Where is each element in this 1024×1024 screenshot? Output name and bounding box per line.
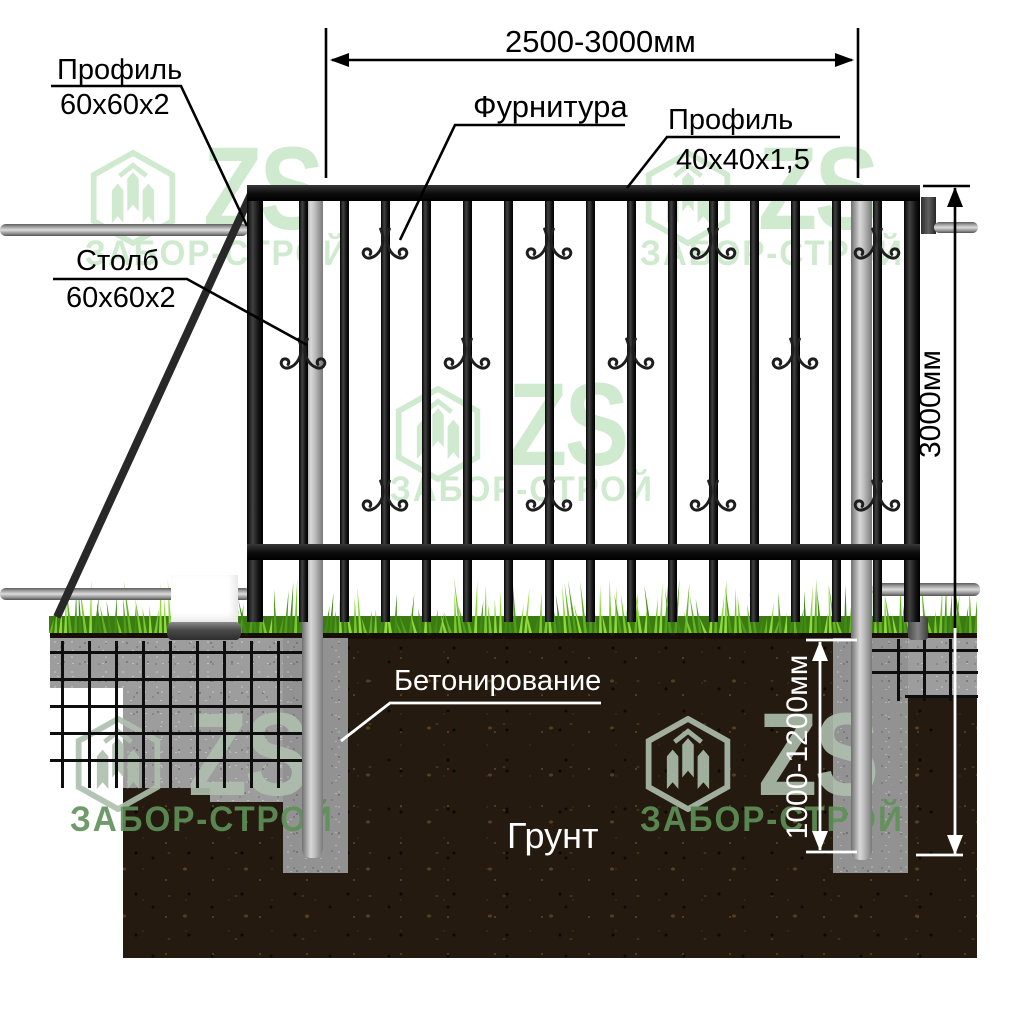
label-profile-picket-size: 40х40х1,5	[676, 145, 810, 175]
brand-hexagon-icon	[390, 386, 486, 482]
concrete-strip-left	[50, 638, 308, 688]
fence-construction-diagram: ZS ЗАБОР-СТРОЙ ZS ЗАБОР-СТРОЙ ZS ЗАБОР-С…	[0, 0, 1024, 1024]
fence-post-left	[302, 196, 323, 858]
label-profile-frame-size: 60х60х2	[60, 90, 170, 120]
fence-rail-bottom	[247, 544, 920, 560]
watermark-logo: ZS ЗАБОР-СТРОЙ	[70, 716, 340, 836]
fence-post-right	[851, 196, 872, 860]
ornament-curl-icon	[767, 337, 823, 383]
brand-hexagon-icon	[640, 716, 736, 812]
brand-initials: ZS	[188, 696, 307, 814]
label-post-size: 60х60х2	[66, 283, 176, 313]
dimension-section-width: 2500-3000мм	[505, 24, 696, 60]
label-concreting: Бетонирование	[394, 666, 601, 696]
label-ground: Грунт	[507, 817, 598, 855]
adjacent-rail-top-left	[0, 224, 248, 236]
ornament-curl-icon	[357, 227, 413, 273]
brand-initials: ZS	[508, 366, 627, 484]
watermark-logo: ZS ЗАБОР-СТРОЙ	[390, 386, 660, 506]
label-profile-picket-title: Профиль	[668, 105, 793, 135]
label-post-title: Столб	[76, 246, 159, 276]
ornament-curl-icon	[521, 227, 577, 273]
brand-name: ЗАБОР-СТРОЙ	[390, 472, 654, 507]
adjacent-rail-top-right	[934, 222, 978, 233]
label-fittings: Фурнитура	[473, 91, 628, 124]
label-profile-frame-title: Профиль	[57, 55, 182, 85]
brand-hexagon-icon	[70, 716, 166, 812]
dimension-embed-depth: 1000-1200мм	[780, 637, 816, 857]
adjacent-rail-bottom-right	[872, 583, 980, 596]
ornament-curl-icon	[439, 337, 495, 383]
pier-cap	[167, 622, 241, 640]
brand-name: ЗАБОР-СТРОЙ	[70, 802, 334, 837]
fence-rail-top	[247, 185, 920, 201]
ornament-curl-icon	[685, 479, 741, 525]
white-marker-box	[171, 575, 238, 623]
dimension-post-height: 3000мм	[912, 334, 950, 474]
